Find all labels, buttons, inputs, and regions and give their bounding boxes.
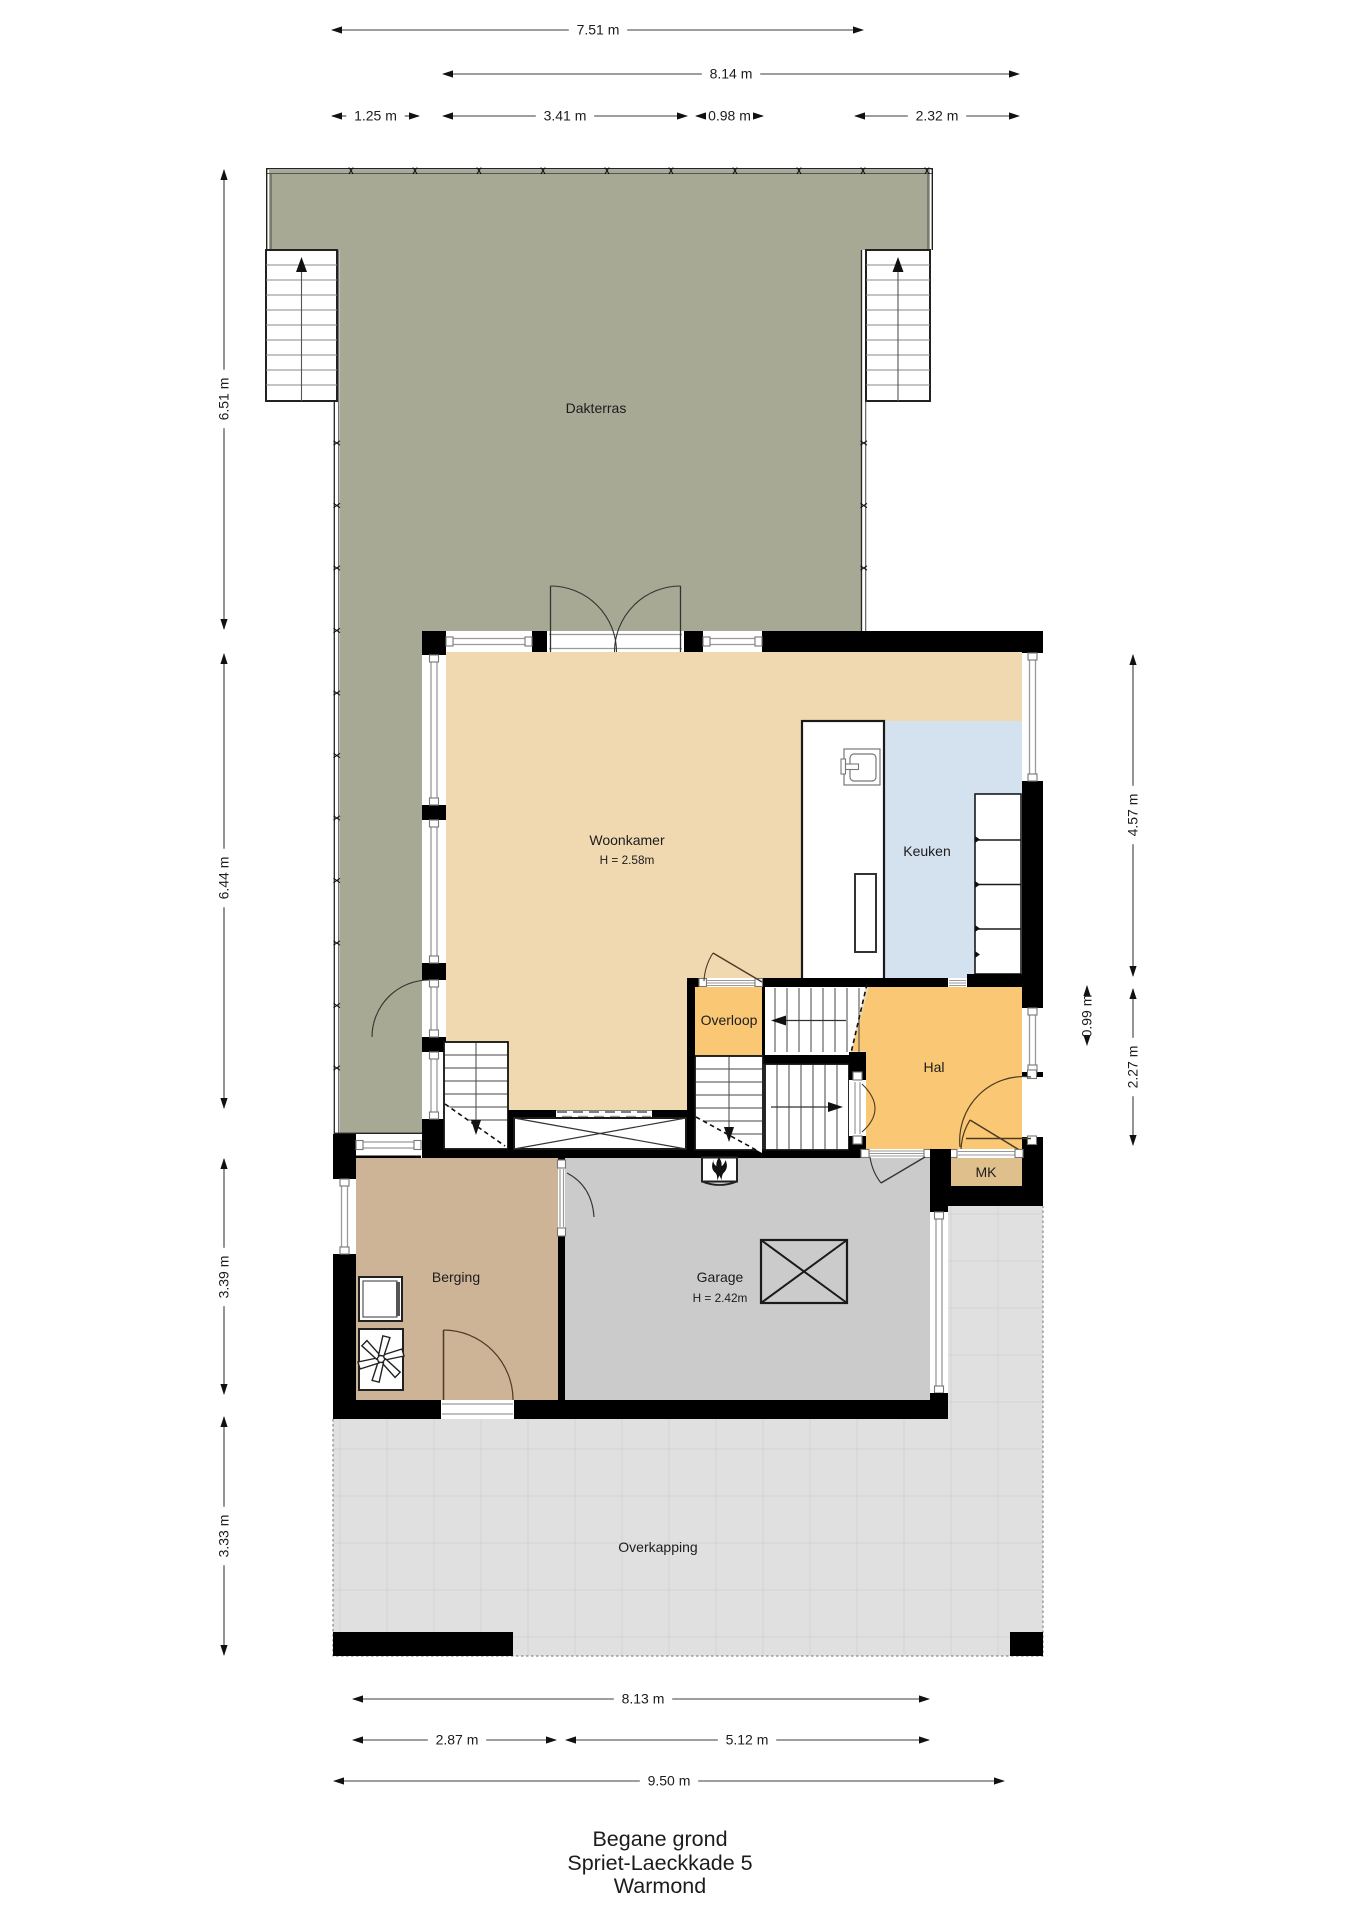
svg-text:Keuken: Keuken — [903, 843, 950, 859]
svg-text:1.25 m: 1.25 m — [354, 108, 397, 124]
svg-text:Woonkamer: Woonkamer — [589, 832, 665, 848]
svg-text:Begane grond: Begane grond — [592, 1827, 727, 1851]
svg-text:Overloop: Overloop — [701, 1012, 758, 1028]
svg-text:8.14 m: 8.14 m — [710, 66, 753, 82]
svg-text:Berging: Berging — [432, 1269, 480, 1285]
svg-text:MK: MK — [976, 1164, 998, 1180]
svg-text:0.98 m: 0.98 m — [708, 108, 751, 124]
svg-text:Dakterras: Dakterras — [566, 400, 627, 416]
svg-text:Overkapping: Overkapping — [618, 1539, 697, 1555]
svg-text:4.57 m: 4.57 m — [1125, 794, 1141, 837]
svg-text:9.50 m: 9.50 m — [648, 1773, 691, 1789]
svg-text:6.51 m: 6.51 m — [216, 378, 232, 421]
svg-text:2.32 m: 2.32 m — [916, 108, 959, 124]
svg-text:Hal: Hal — [923, 1059, 944, 1075]
svg-text:0.99 m: 0.99 m — [1079, 995, 1095, 1038]
svg-text:H = 2.58m: H = 2.58m — [600, 853, 655, 867]
svg-text:7.51 m: 7.51 m — [577, 22, 620, 38]
svg-text:2.87 m: 2.87 m — [436, 1732, 479, 1748]
svg-text:3.39 m: 3.39 m — [216, 1256, 232, 1299]
svg-text:6.44 m: 6.44 m — [216, 857, 232, 900]
svg-text:5.12 m: 5.12 m — [726, 1732, 769, 1748]
svg-text:3.33 m: 3.33 m — [216, 1515, 232, 1558]
svg-text:8.13 m: 8.13 m — [622, 1691, 665, 1707]
svg-text:2.27 m: 2.27 m — [1125, 1046, 1141, 1089]
svg-text:3.41 m: 3.41 m — [544, 108, 587, 124]
svg-text:H = 2.42m: H = 2.42m — [693, 1291, 748, 1305]
svg-text:Warmond: Warmond — [614, 1874, 706, 1898]
svg-text:Garage: Garage — [697, 1269, 744, 1285]
svg-text:Spriet-Laeckkade 5: Spriet-Laeckkade 5 — [567, 1851, 752, 1875]
